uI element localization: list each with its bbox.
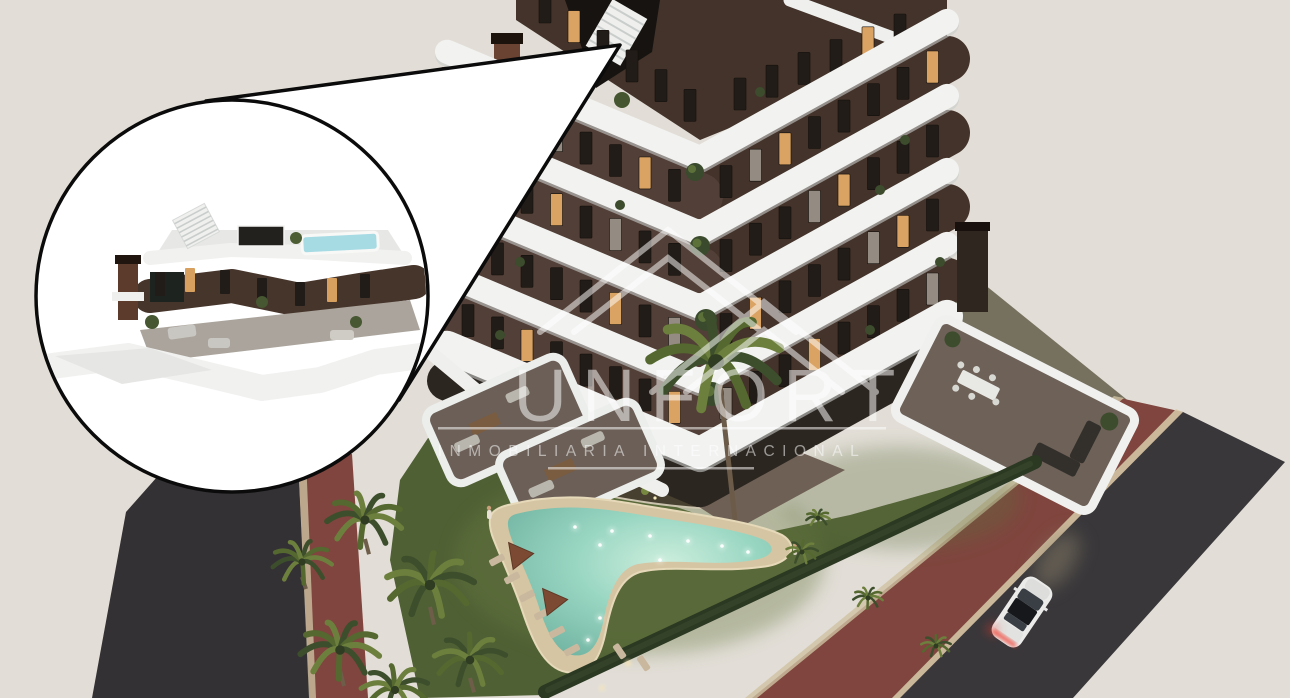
watermark-rule-top — [438, 427, 886, 430]
scene-render: UNFORT INMOBILIARIA INTERNACIONAL — [0, 0, 1290, 698]
chimney-right — [957, 228, 988, 312]
rooftop-pool — [302, 232, 379, 254]
watermark-brand: UNFORT — [514, 354, 911, 437]
render-stage: UNFORT INMOBILIARIA INTERNACIONAL — [0, 0, 1290, 698]
watermark-subtitle: INMOBILIARIA INTERNACIONAL — [438, 443, 866, 460]
watermark-rule-bottom — [548, 467, 754, 470]
roof-pergola — [238, 226, 284, 246]
